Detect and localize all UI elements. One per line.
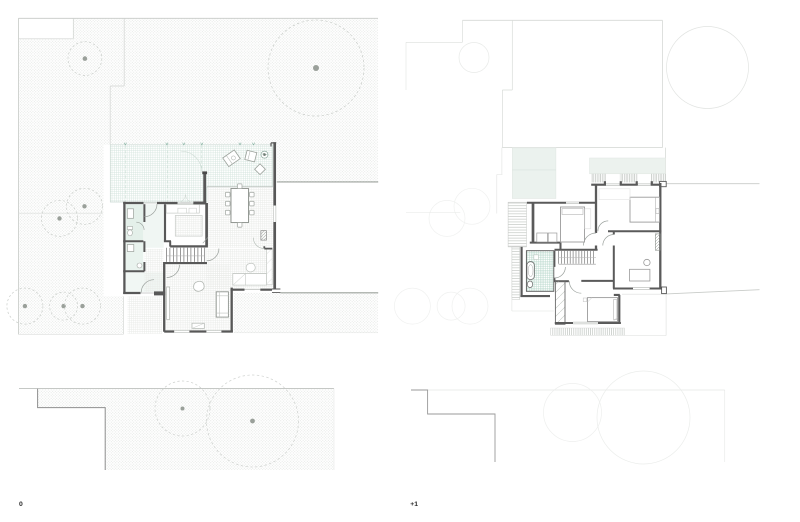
svg-text:0: 0 [19, 501, 23, 508]
svg-text:+1: +1 [410, 501, 418, 508]
